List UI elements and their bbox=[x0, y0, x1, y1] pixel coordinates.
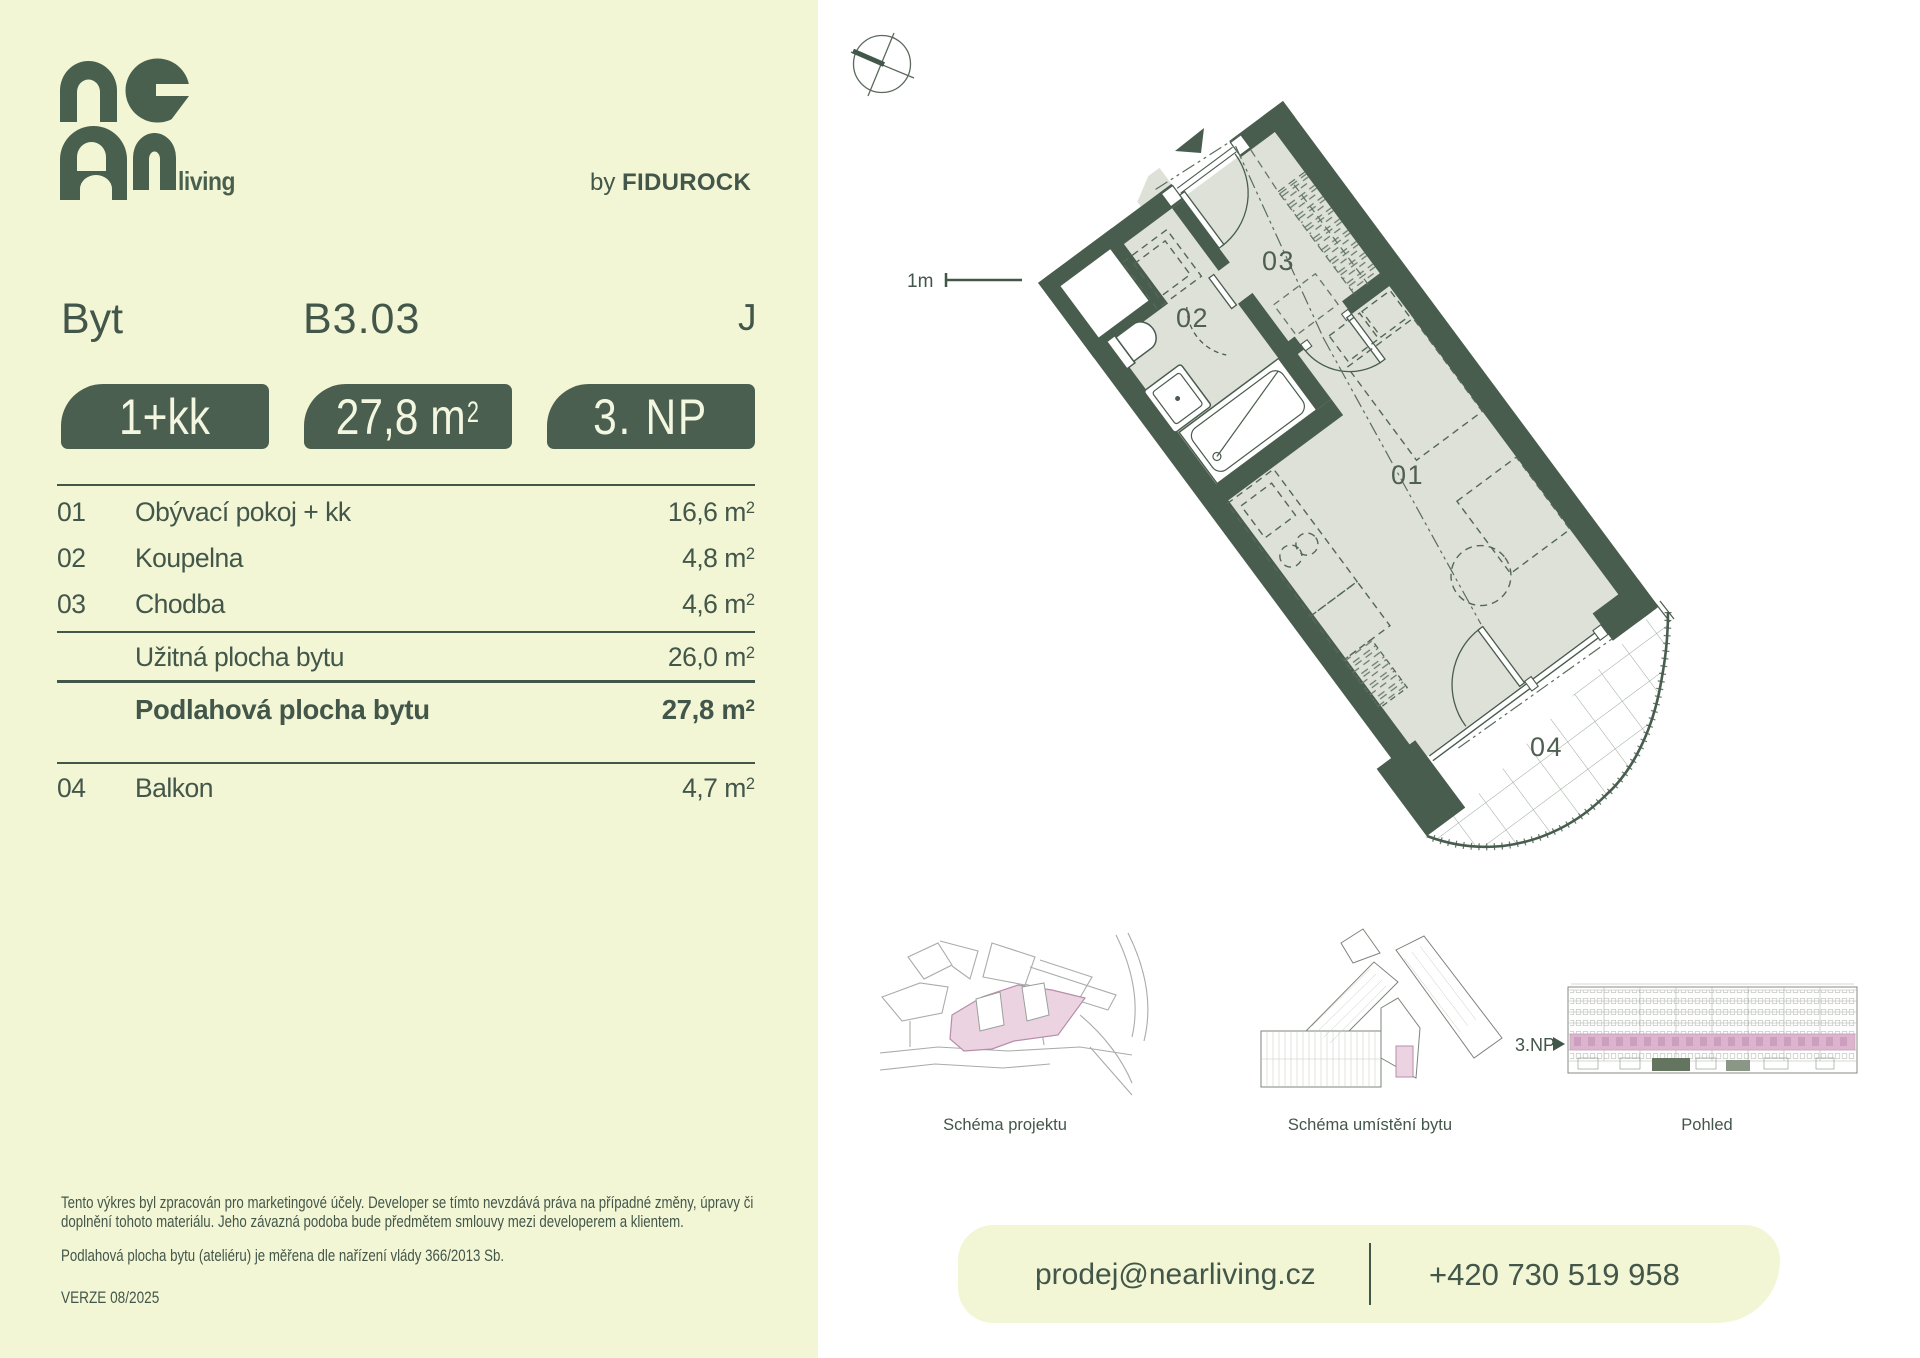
svg-text:1m: 1m bbox=[907, 271, 933, 292]
svg-text:01: 01 bbox=[1391, 460, 1424, 490]
svg-text:04: 04 bbox=[1530, 732, 1563, 762]
svg-text:Schéma umístění bytu: Schéma umístění bytu bbox=[1288, 1116, 1452, 1134]
svg-text:Pohled: Pohled bbox=[1681, 1116, 1732, 1134]
svg-text:3.NP: 3.NP bbox=[1515, 1035, 1555, 1055]
svg-text:03: 03 bbox=[1262, 246, 1295, 276]
svg-text:02: 02 bbox=[1176, 303, 1209, 333]
svg-text:Schéma projektu: Schéma projektu bbox=[943, 1116, 1067, 1134]
